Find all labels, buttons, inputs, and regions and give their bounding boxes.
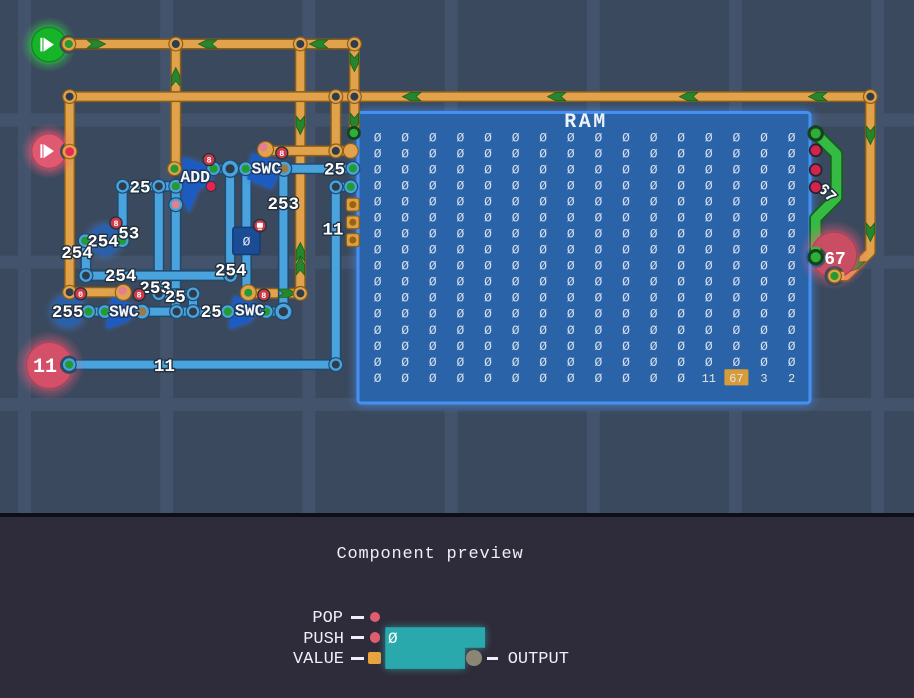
svg-text:ØØØØØØØØØØØØØØØØ: ØØØØØØØØØØØØØØØØ [374,307,816,322]
svg-text:253: 253 [268,195,300,215]
svg-text:11: 11 [154,357,175,377]
svg-text:SWC: SWC [235,302,265,321]
svg-text:67: 67 [729,372,743,386]
svg-text:11: 11 [322,221,343,241]
svg-text:254: 254 [215,262,247,282]
svg-text:ØØØØØØØØØØØØØØØØ: ØØØØØØØØØØØØØØØØ [374,323,816,338]
svg-text:254: 254 [105,267,137,287]
svg-text:ØØØØØØØØØØØØØØØØ: ØØØØØØØØØØØØØØØØ [374,355,816,370]
svg-text:25: 25 [324,161,345,181]
svg-text:ØØØØØØØØØØØØØØØØ: ØØØØØØØØØØØØØØØØ [374,195,816,210]
svg-text:25: 25 [165,288,186,308]
svg-text:53: 53 [118,224,139,244]
svg-text:3: 3 [760,372,767,386]
svg-text:11: 11 [702,372,716,386]
svg-text:67: 67 [824,250,846,270]
svg-text:ØØØØØØØØØØØØØØØØ: ØØØØØØØØØØØØØØØØ [374,243,816,258]
svg-text:ØØØØØØØØØØØØØØØØ: ØØØØØØØØØØØØØØØØ [374,275,816,290]
svg-text:8: 8 [113,219,118,229]
svg-text:ØØØØØØØØØØØØØØØØ: ØØØØØØØØØØØØØØØØ [374,179,816,194]
svg-text:8: 8 [206,156,211,166]
svg-text:8: 8 [261,291,266,301]
svg-text:ØØØØØØØØØØØØØØØØ: ØØØØØØØØØØØØØØØØ [374,259,816,274]
svg-text:2: 2 [788,372,795,386]
svg-text:25: 25 [129,179,150,199]
svg-text:ØØØØØØØØØØØØØØØØ: ØØØØØØØØØØØØØØØØ [374,291,816,306]
svg-text:ØØØØØØØØØØØØØØØØ: ØØØØØØØØØØØØØØØØ [374,339,816,354]
svg-text:ØØØØØØØØØØØØØØØØ: ØØØØØØØØØØØØØØØØ [374,211,816,226]
svg-text:11: 11 [33,356,57,379]
svg-text:8: 8 [137,291,142,301]
svg-text:ADD: ADD [180,168,210,187]
svg-text:25: 25 [201,303,222,323]
svg-text:ØØØØØØØØØØØØØØØØ: ØØØØØØØØØØØØØØØØ [374,227,816,242]
svg-text:8: 8 [279,149,284,159]
svg-text:SWC: SWC [252,159,282,178]
svg-text:254: 254 [61,244,93,264]
svg-text:ØØØØØØØØØØØØØØØØ: ØØØØØØØØØØØØØØØØ [374,163,816,178]
svg-text:ØØØØØØØØØØØØ: ØØØØØØØØØØØØ [374,371,705,386]
svg-text:SWC: SWC [109,303,139,322]
svg-text:0: 0 [78,290,83,300]
svg-text:255: 255 [52,303,84,323]
svg-text:ØØØØØØØØØØØØØØØØ: ØØØØØØØØØØØØØØØØ [374,130,816,145]
svg-text:Ø: Ø [243,235,251,250]
svg-text:ØØØØØØØØØØØØØØØØ: ØØØØØØØØØØØØØØØØ [374,146,816,161]
